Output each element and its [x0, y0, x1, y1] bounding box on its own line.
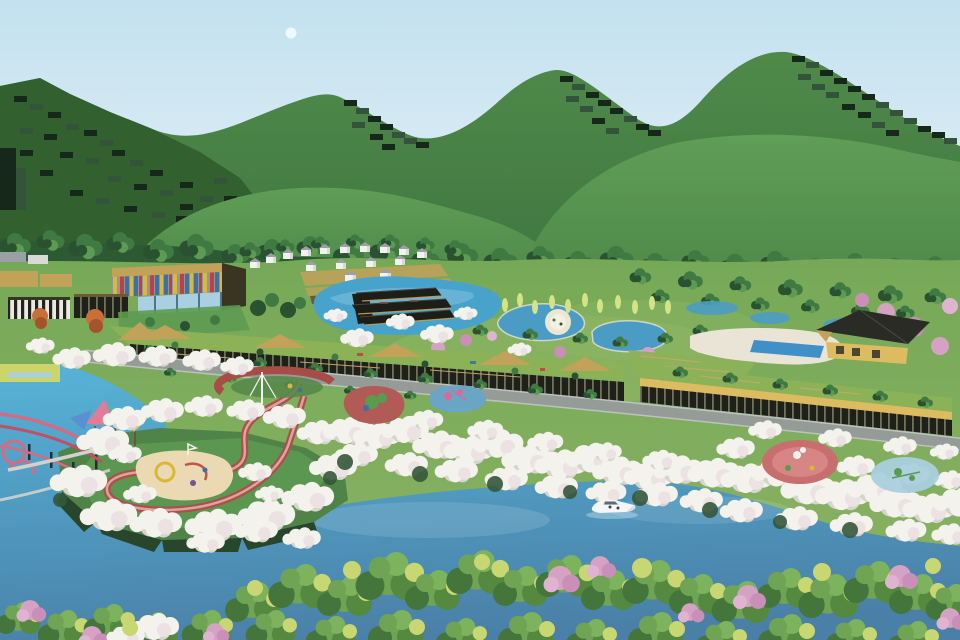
playground-pond — [430, 385, 486, 412]
rendering-canvas — [0, 0, 960, 640]
blue-playground-patch — [871, 457, 939, 493]
masterplan-rendering — [0, 0, 960, 640]
pink-playground-circle — [762, 440, 838, 484]
moon — [286, 28, 297, 39]
dark-tower — [0, 148, 16, 210]
tan-building-row — [0, 271, 38, 287]
playground-red-patch — [344, 386, 405, 424]
